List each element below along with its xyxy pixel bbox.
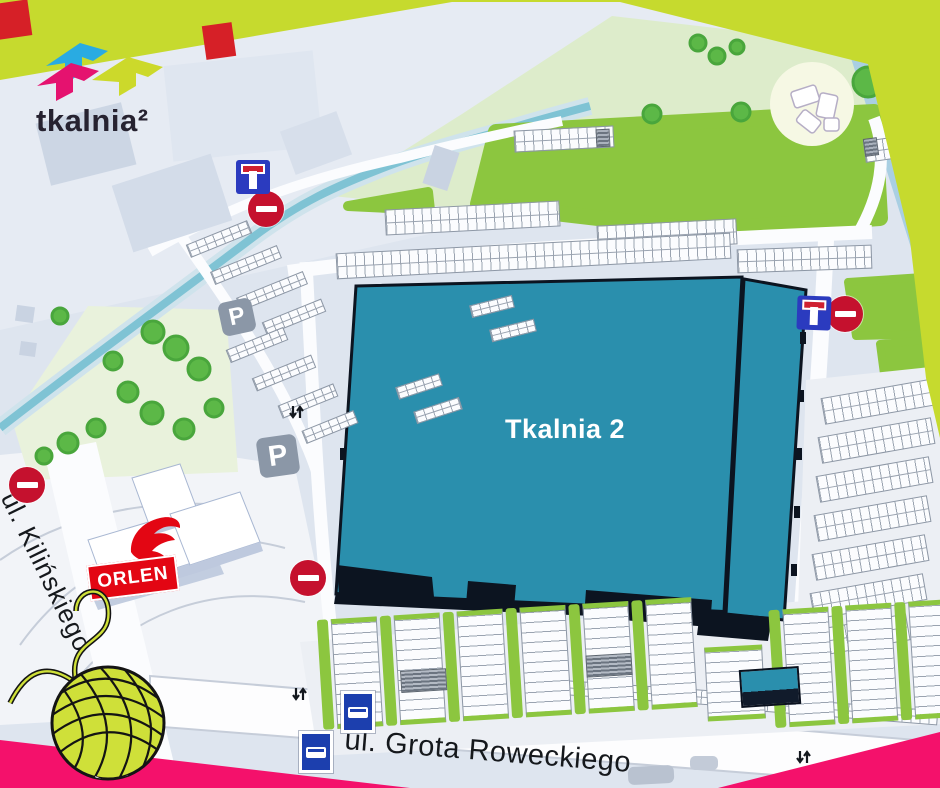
tkalnia-logo: tkalnia² (36, 40, 171, 139)
parking-sign: P (255, 433, 300, 478)
tkalnia-logo-text: tkalnia² (36, 103, 171, 139)
parking-sign: P (217, 297, 257, 337)
pedestrian-crossing-icon (291, 685, 308, 703)
bus-stop-sign (341, 691, 375, 733)
pedestrian-crossing-icon (795, 748, 812, 766)
no-entry-sign (827, 296, 863, 332)
dead-end-sign (796, 295, 831, 330)
no-entry-sign (290, 560, 326, 596)
bus-stop-sign (299, 731, 333, 773)
no-entry-sign (248, 191, 284, 227)
no-entry-sign (9, 467, 45, 503)
dead-end-sign (236, 160, 270, 194)
tkalnia-logo-mark (36, 40, 171, 102)
yarn-ball-illustration (0, 555, 215, 788)
pedestrian-crossing-icon (288, 403, 305, 421)
site-map: Tkalnia 2 ul. Kilińskiego ul. Grota Rowe… (0, 0, 940, 788)
